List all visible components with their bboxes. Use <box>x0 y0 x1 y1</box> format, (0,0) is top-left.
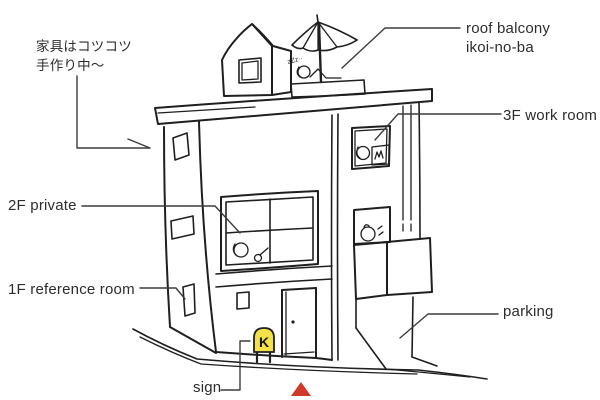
label-parking: parking <box>503 302 554 321</box>
left-face-window-mid <box>171 216 194 239</box>
k-sign: K <box>254 328 274 362</box>
person-2f <box>233 243 268 262</box>
leader-2f-private <box>82 206 240 233</box>
label-3f-work-room: 3F work room <box>503 106 597 125</box>
roof-slab <box>155 89 432 124</box>
entrance-marker-triangle <box>291 382 311 396</box>
drainpipe <box>403 105 411 231</box>
roof-deck <box>291 80 365 97</box>
window-1f-reference <box>183 284 195 316</box>
window-2f <box>221 191 318 271</box>
label-2f-private: 2F private <box>8 196 77 215</box>
leader-parking <box>400 314 498 338</box>
left-face-window-top <box>173 133 189 160</box>
label-1f-reference-room: 1F reference room <box>8 280 135 299</box>
sketch-canvas: zZz·· <box>0 0 600 400</box>
leader-roof-balcony <box>342 28 460 68</box>
umbrella-icon <box>292 15 357 82</box>
balcony-person <box>361 225 383 241</box>
label-sign: sign <box>193 378 221 397</box>
balcony-box <box>354 238 432 299</box>
penthouse <box>222 24 291 96</box>
window-3f <box>352 126 390 169</box>
k-sign-letter: K <box>259 334 269 350</box>
floor-band-lower <box>216 279 332 287</box>
leader-handmade-note <box>77 76 150 148</box>
building-left-face <box>164 121 216 353</box>
people-3f <box>357 145 390 165</box>
door-handle <box>291 320 294 323</box>
entrance-doorway <box>282 288 316 358</box>
window-1f-front-small <box>237 292 249 309</box>
label-roof-balcony: roof balcony ikoi-no-ba <box>466 19 550 57</box>
sleep-zzz-marks: zZz·· <box>287 55 304 66</box>
leader-3f-work-room <box>375 114 501 140</box>
parking-ramp <box>356 297 470 377</box>
opening-2f-right <box>354 207 390 244</box>
label-handmade-note: 家具はコツコツ 手作り中〜 <box>36 37 132 75</box>
leader-1f-reference-room <box>140 288 185 299</box>
leader-lines <box>77 28 501 390</box>
roof-napper: zZz·· <box>287 55 341 78</box>
building-right-edge <box>419 103 420 239</box>
